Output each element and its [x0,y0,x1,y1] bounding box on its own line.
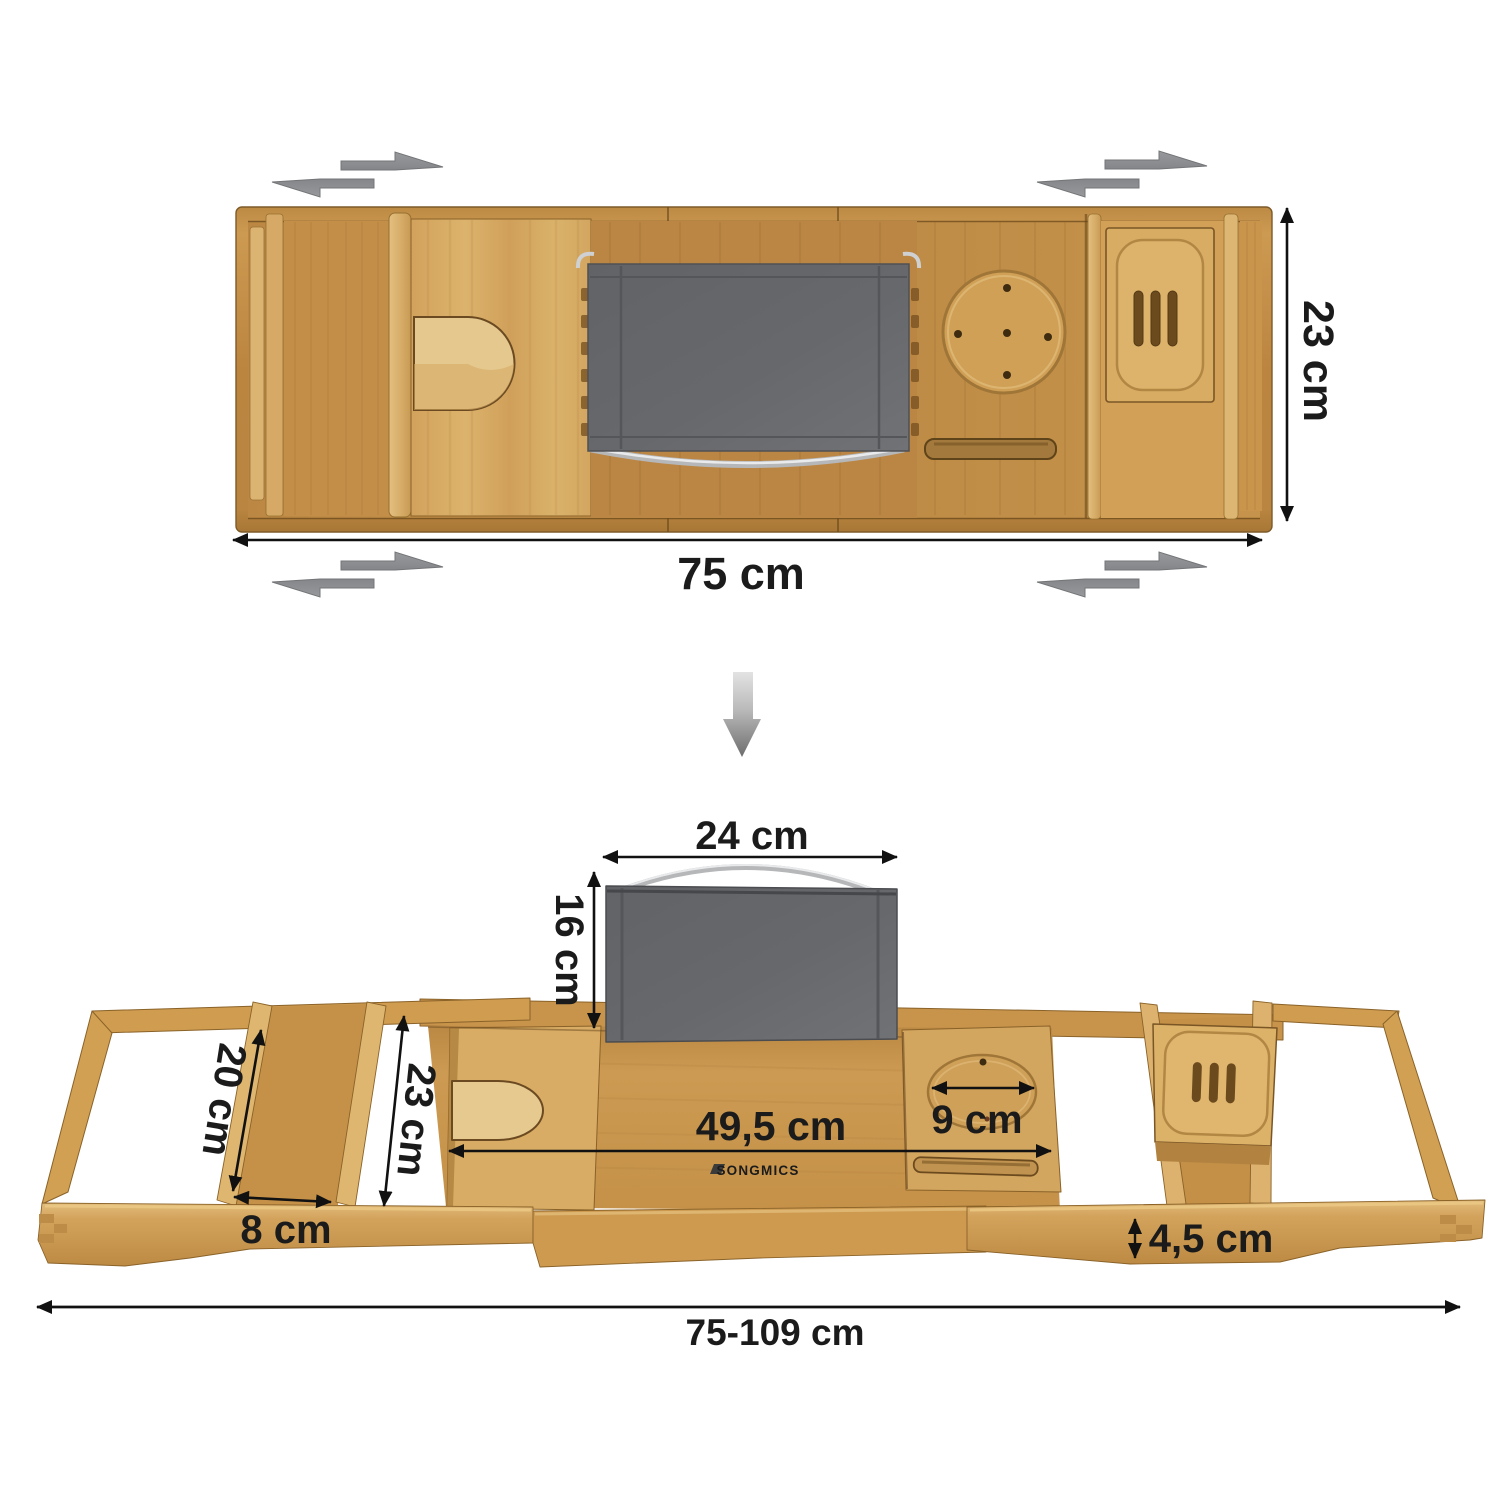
svg-text:9 cm: 9 cm [931,1098,1022,1142]
svg-text:SONGMICS: SONGMICS [716,1163,799,1178]
svg-text:49,5 cm: 49,5 cm [696,1103,846,1149]
svg-text:24 cm: 24 cm [695,814,808,858]
svg-text:4,5 cm: 4,5 cm [1149,1217,1274,1261]
svg-text:16 cm: 16 cm [547,893,591,1006]
svg-text:75 cm: 75 cm [677,548,805,599]
svg-text:75-109 cm: 75-109 cm [686,1312,865,1353]
svg-text:23 cm: 23 cm [1294,300,1342,422]
svg-text:8 cm: 8 cm [240,1208,331,1252]
